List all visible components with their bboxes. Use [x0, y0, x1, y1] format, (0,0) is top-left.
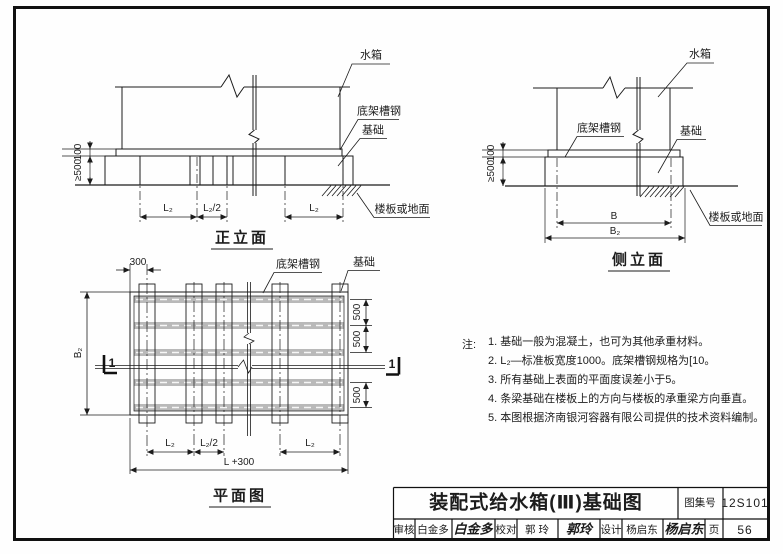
- drawing-sheet: 水箱 底架槽钢 基础 楼板或地面 100 ≥500 L₂ L₂/2 L₂ 正立面…: [0, 0, 783, 554]
- side-dim-500: ≥500: [487, 160, 497, 182]
- plan-foundation-label: 基础: [353, 258, 375, 269]
- front-dim-500: ≥500: [74, 159, 84, 181]
- reviewer-signature: 白金多: [453, 523, 492, 536]
- plan-section-marker-left: 1: [109, 357, 116, 369]
- side-floor-label: 楼板或地面: [709, 213, 764, 224]
- plan-section-marker-right: 1: [389, 358, 396, 370]
- side-view-title: 侧立面: [608, 253, 670, 272]
- side-dim-b2: B₂: [610, 227, 621, 237]
- side-foundation-label: 基础: [680, 127, 702, 138]
- checker-signature: 郭玲: [566, 523, 592, 536]
- atlas-number-value: 12S101: [721, 497, 768, 509]
- plan-view-title: 平面图: [209, 489, 271, 508]
- notes-list: 1. 基础一般为混凝土，也可为其他承重材料。 2. L₂—标准板宽度1000。底…: [488, 333, 764, 428]
- plan-dim-l2-right: L₂: [305, 439, 314, 449]
- checker-name: 郭 玲: [525, 525, 549, 536]
- front-view-title: 正立面: [211, 231, 273, 250]
- front-dim-l2-left: L₂: [163, 204, 172, 214]
- page-label: 页: [709, 525, 720, 536]
- page-number: 56: [737, 524, 752, 536]
- front-channel-label: 底架槽钢: [357, 107, 401, 118]
- note-item-1: 1. 基础一般为混凝土，也可为其他承重材料。: [488, 333, 764, 352]
- note-item-3: 3. 所有基础上表面的平面度误差小于5。: [488, 371, 764, 390]
- designer-name: 杨启东: [626, 525, 658, 536]
- reviewer-name: 白金多: [417, 525, 449, 536]
- plan-dim-500-3: 500: [353, 387, 363, 404]
- plan-channel-label: 底架槽钢: [276, 260, 320, 271]
- reviewer-label: 审核: [394, 525, 415, 536]
- designer-label: 设计: [601, 525, 622, 536]
- drawing-linework: [0, 0, 783, 554]
- plan-dim-l2-left: L₂: [165, 439, 174, 449]
- designer-signature: 杨启东: [664, 523, 703, 536]
- side-dim-100: 100: [487, 145, 497, 162]
- side-dim-b: B: [611, 212, 618, 222]
- plan-dim-500-1: 500: [353, 304, 363, 321]
- atlas-number-label: 图集号: [684, 498, 716, 509]
- front-floor-label: 楼板或地面: [375, 205, 430, 216]
- front-dim-l2-half: L₂/2: [203, 204, 221, 214]
- front-tank-label: 水箱: [360, 51, 382, 62]
- side-tank-label: 水箱: [689, 50, 711, 61]
- checker-label: 校对: [496, 525, 517, 536]
- front-dim-l2-right: L₂: [309, 204, 318, 214]
- plan-dim-b2: B₂: [74, 348, 84, 359]
- note-item-4: 4. 条梁基础在楼板上的方向与楼板的承重梁方向垂直。: [488, 390, 764, 409]
- front-foundation-label: 基础: [362, 126, 384, 137]
- plan-dim-500-2: 500: [353, 331, 363, 348]
- note-item-5: 5. 本图根据济南银河容器有限公司提供的技术资料编制。: [488, 409, 764, 428]
- plan-dim-300: 300: [130, 258, 147, 268]
- plan-dim-total: L +300: [224, 458, 255, 468]
- note-item-2: 2. L₂—标准板宽度1000。底架槽钢规格为[10。: [488, 352, 764, 371]
- side-channel-label: 底架槽钢: [577, 124, 621, 135]
- sheet-title: 装配式给水箱(Ⅲ)基础图: [429, 494, 643, 513]
- front-dim-100: 100: [74, 144, 84, 161]
- notes-heading: 注:: [462, 336, 476, 352]
- plan-dim-l2-half: L₂/2: [200, 439, 218, 449]
